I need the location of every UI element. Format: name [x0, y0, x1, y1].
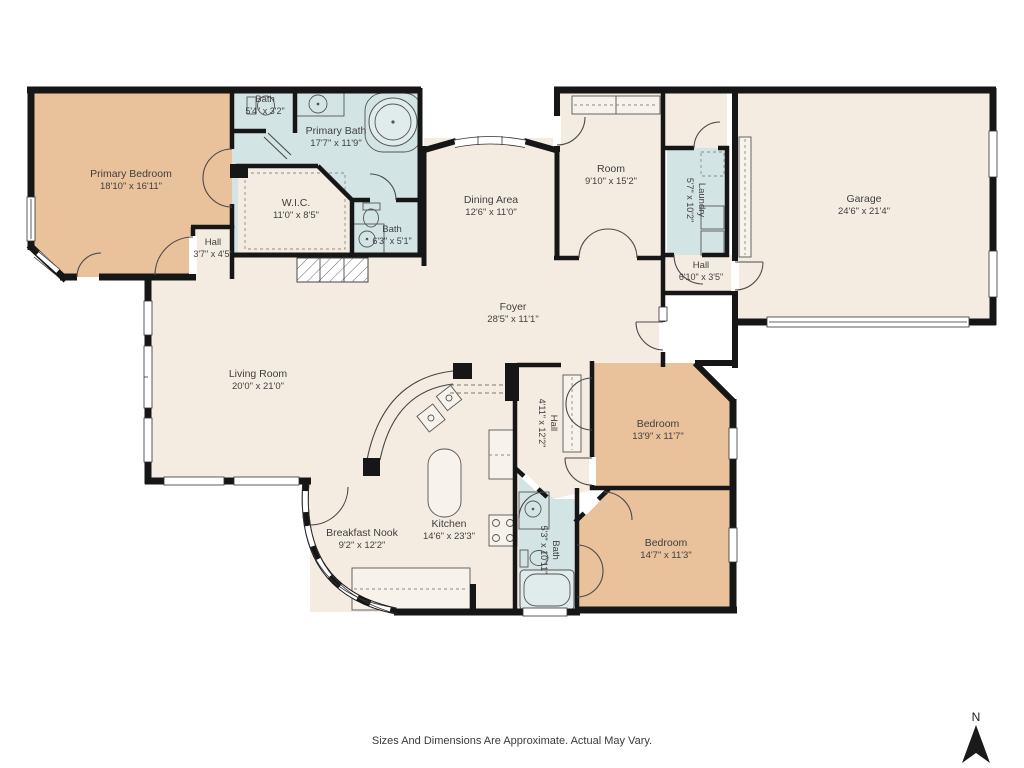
bathtub-icon	[520, 570, 574, 610]
refrigerator-icon	[489, 430, 516, 479]
kitchen-island	[428, 449, 461, 517]
stairs-hatch	[297, 258, 368, 282]
floorplan-page: Primary Bedroom 18'10" x 16'11" Bath 5'4…	[0, 0, 1024, 768]
floor-plan-drawing	[0, 0, 1024, 768]
disclaimer-text: Sizes And Dimensions Are Approximate. Ac…	[0, 735, 1024, 747]
north-label: N	[958, 710, 994, 724]
closet-shelf	[572, 96, 660, 114]
garage-shelf	[739, 137, 751, 257]
north-arrow-icon	[962, 725, 990, 765]
north-arrow: N	[958, 710, 994, 768]
